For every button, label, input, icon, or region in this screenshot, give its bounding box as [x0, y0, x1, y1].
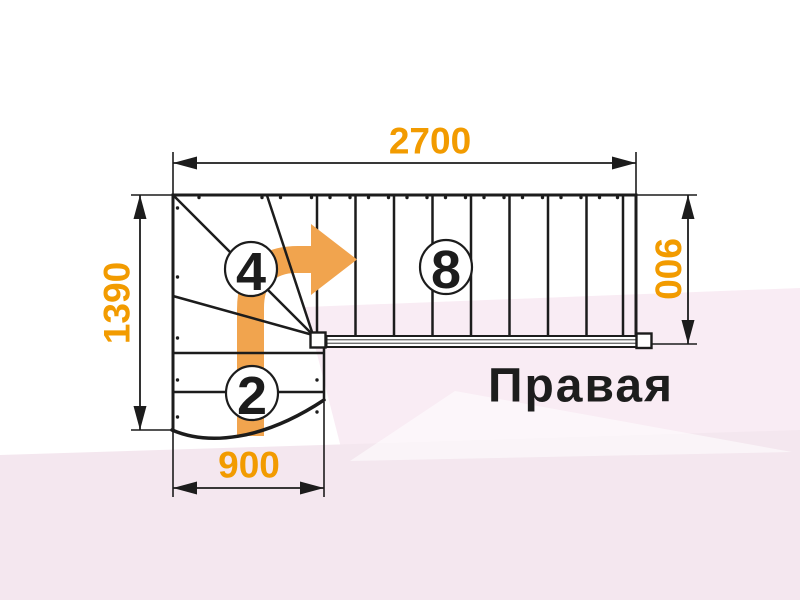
- dimension-value-top: 2700: [389, 121, 471, 162]
- marker-dot: [541, 196, 544, 199]
- dimension-arrowhead-top: [682, 195, 695, 219]
- marker-dot: [444, 196, 447, 199]
- dimension-arrowhead-bottom: [134, 406, 147, 430]
- lower-flight-step-count: 2: [237, 366, 267, 426]
- marker-dot: [405, 196, 408, 199]
- marker-dot: [197, 196, 200, 199]
- winder-flight-step-count: 4: [236, 242, 266, 302]
- marker-dot: [367, 196, 370, 199]
- dimension-left: 1390: [97, 195, 176, 430]
- marker-dot: [176, 415, 179, 418]
- marker-dot: [559, 196, 562, 199]
- orientation-label: Правая: [488, 360, 674, 413]
- marker-dot: [176, 206, 179, 209]
- dimension-value-bottom: 900: [218, 445, 280, 486]
- marker-dot: [482, 196, 485, 199]
- dimension-arrowhead-left: [173, 157, 197, 170]
- dimension-arrowhead-right: [612, 157, 636, 170]
- staircase-plan-svg: 2700 1390 900 900 4 8 2 Правая: [0, 0, 800, 600]
- marker-dot: [425, 196, 428, 199]
- marker-dot: [260, 196, 263, 199]
- marker-dot: [176, 336, 179, 339]
- upper-flight-step-count: 8: [431, 240, 461, 300]
- marker-dot: [279, 196, 282, 199]
- newel-post-right: [637, 334, 652, 349]
- marker-dot: [521, 196, 524, 199]
- marker-dot: [348, 196, 351, 199]
- dimension-arrowhead-top: [134, 195, 147, 219]
- newel-post-left: [311, 333, 326, 348]
- marker-dot: [579, 196, 582, 199]
- marker-dot: [315, 410, 318, 413]
- marker-dot: [464, 196, 467, 199]
- marker-dot: [176, 275, 179, 278]
- marker-dot: [315, 378, 318, 381]
- marker-dot: [387, 196, 390, 199]
- staircase-plan-page: 2700 1390 900 900 4 8 2 Правая: [0, 0, 800, 600]
- dimension-value-right: 900: [648, 238, 689, 300]
- marker-dot: [328, 196, 331, 199]
- marker-dot: [598, 196, 601, 199]
- dimension-value-left: 1390: [97, 262, 138, 344]
- handrail-bar: [327, 336, 637, 347]
- marker-dot: [616, 196, 619, 199]
- marker-dot: [176, 378, 179, 381]
- dimension-top: 2700: [173, 121, 636, 197]
- marker-dot: [502, 196, 505, 199]
- marker-dot: [310, 196, 313, 199]
